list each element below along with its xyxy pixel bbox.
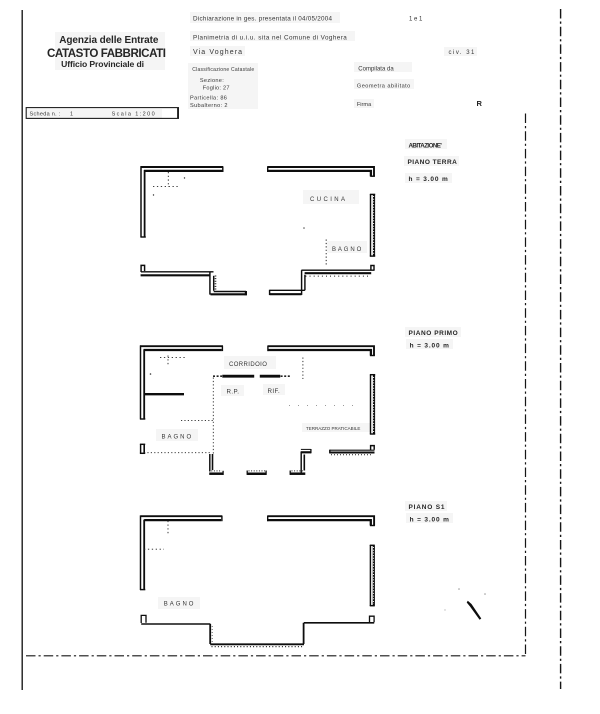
svg-text:1 e 1: 1 e 1 — [409, 17, 423, 23]
svg-text:R: R — [477, 99, 483, 108]
